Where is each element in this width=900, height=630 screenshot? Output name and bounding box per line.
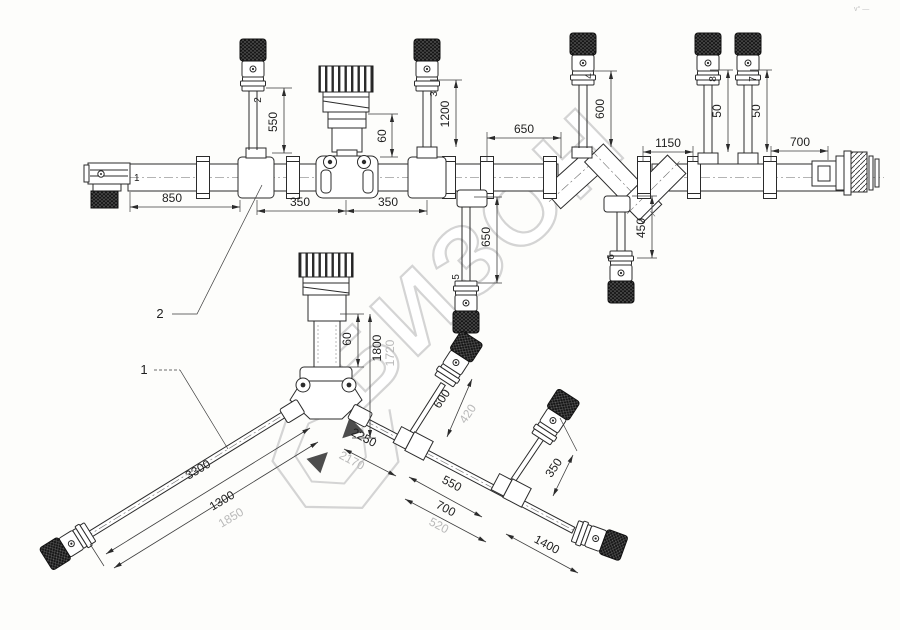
dim-350a: 350 <box>290 195 310 209</box>
dim-650-main: 650 <box>514 122 534 136</box>
harness-drawing: БИЗОН v° — <box>0 0 900 630</box>
boss-branch5 <box>457 190 487 207</box>
cable-branch8 <box>704 85 712 153</box>
connector-branch-350 <box>530 388 580 446</box>
left-end-connector <box>84 163 130 208</box>
callout-1: 1 <box>140 362 147 377</box>
dim-60-lower: 60 <box>340 332 354 346</box>
dim-550-lower: 550 <box>440 473 465 495</box>
connector-right-end-lower <box>571 519 629 561</box>
dim-1800: 1800 <box>370 334 384 361</box>
dim-2250-alt: 2170 <box>337 448 367 473</box>
dim-600-alt: 420 <box>456 401 479 426</box>
branch8-label: 8 <box>708 76 719 82</box>
dim-850: 850 <box>162 191 182 205</box>
right-connector-body <box>851 152 867 192</box>
round-connector-top <box>316 66 378 198</box>
branch4-label: 4 <box>584 73 595 79</box>
callout-2: 2 <box>156 306 163 321</box>
cable-branch7 <box>744 85 752 153</box>
left-connector-cap <box>91 191 118 208</box>
dim-350b: 350 <box>378 195 398 209</box>
connector-2 <box>240 39 266 91</box>
branch2-label: 2 <box>253 97 264 103</box>
cable-branch3 <box>423 91 431 147</box>
dim-1800-alt: 1720 <box>383 339 397 366</box>
boss-branch7 <box>738 153 758 164</box>
dim-60-top: 60 <box>375 129 389 143</box>
branch5-label: 5 <box>451 274 462 280</box>
dim-700-top: 700 <box>790 135 810 149</box>
cable-branch6 <box>617 212 625 251</box>
dim-1200: 1200 <box>438 100 452 127</box>
corner-mark: v° — <box>854 5 869 13</box>
branch3-label: 3 <box>429 91 440 97</box>
branch7-label: 7 <box>748 76 759 82</box>
dim-600-b4: 600 <box>593 99 607 119</box>
boss-branch8 <box>698 153 718 164</box>
boss-branch6 <box>604 196 630 212</box>
lower-harness <box>39 253 628 571</box>
dim-350-lower: 350 <box>542 455 565 480</box>
callouts: 2 1 <box>140 185 262 449</box>
dim-650-b5: 650 <box>479 227 493 247</box>
dim-50b: 50 <box>749 104 763 118</box>
dim-450: 450 <box>634 218 648 238</box>
connector-3 <box>414 39 440 91</box>
connector-left-end-lower <box>39 521 97 571</box>
connector-5 <box>453 281 479 333</box>
dim-50a: 50 <box>710 104 724 118</box>
dim-600-lower: 600 <box>430 386 453 411</box>
branch6-label: 6 <box>606 254 617 260</box>
harness-drawing-page: БИЗОН v° — <box>0 0 900 630</box>
dim-1150: 1150 <box>655 136 681 150</box>
logo-arrow-right-icon <box>307 445 335 473</box>
tee-branch2 <box>238 157 274 198</box>
dim-1400: 1400 <box>532 532 562 557</box>
dim-700-alt: 520 <box>427 515 452 537</box>
boss-branch4 <box>572 147 592 158</box>
tee-branch3 <box>408 157 446 198</box>
dim-550: 550 <box>266 112 280 132</box>
left-connector-label: 1 <box>134 173 140 184</box>
boss-branch3 <box>417 147 437 158</box>
